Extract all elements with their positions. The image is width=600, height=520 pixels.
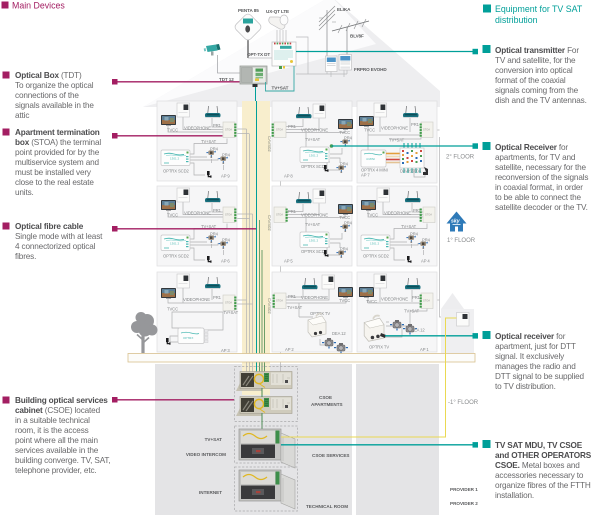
svg-text:in coaxial format, in order: in coaxial format, in order bbox=[495, 183, 583, 192]
svg-text:PR1: PR1 bbox=[213, 295, 222, 300]
svg-text:CSOE: CSOE bbox=[319, 395, 332, 400]
svg-text:close to the real estate: close to the real estate bbox=[15, 178, 94, 187]
svg-text:accessories necessary to: accessories necessary to bbox=[495, 471, 584, 480]
svg-text:organize fibres of the FTTH: organize fibres of the FTTH bbox=[495, 481, 591, 490]
svg-text:PROVIDER 1: PROVIDER 1 bbox=[450, 487, 478, 492]
svg-text:services available in the: services available in the bbox=[15, 446, 99, 455]
svg-text:PENTA 85: PENTA 85 bbox=[238, 8, 259, 13]
svg-text:4 MINI: 4 MINI bbox=[366, 157, 375, 161]
svg-text:INTERNET: INTERNET bbox=[199, 490, 222, 495]
svg-text:-1° FLOOR: -1° FLOOR bbox=[448, 400, 479, 406]
svg-text:DAVIS500A: DAVIS500A bbox=[400, 169, 421, 174]
svg-text:cabinet (CSOE) located: cabinet (CSOE) located bbox=[15, 406, 101, 415]
svg-text:Optical fibre cable: Optical fibre cable bbox=[15, 222, 84, 231]
svg-text:TV+SAT: TV+SAT bbox=[404, 309, 420, 314]
svg-text:installation.: installation. bbox=[495, 491, 534, 500]
svg-text:multiservice system and: multiservice system and bbox=[15, 158, 100, 167]
svg-text:TVCC: TVCC bbox=[364, 128, 375, 133]
svg-text:format of the coaxial: format of the coaxial bbox=[495, 76, 566, 85]
svg-text:satellite, necessary for the: satellite, necessary for the bbox=[495, 163, 587, 172]
svg-text:conversion into optical: conversion into optical bbox=[495, 66, 573, 75]
svg-text:TVCC: TVCC bbox=[167, 307, 178, 312]
svg-text:To organize the optical: To organize the optical bbox=[15, 81, 94, 90]
svg-text:TV SAT MDU, TV CSOE: TV SAT MDU, TV CSOE bbox=[495, 441, 583, 450]
svg-text:ELIKA: ELIKA bbox=[337, 7, 351, 12]
svg-text:AP 1: AP 1 bbox=[420, 347, 429, 352]
svg-text:VIDEO INTERCOM: VIDEO INTERCOM bbox=[186, 452, 226, 457]
svg-text:CSOE. Metal boxes and: CSOE. Metal boxes and bbox=[495, 461, 580, 470]
svg-text:point where all the main: point where all the main bbox=[15, 436, 98, 445]
svg-text:AP 4: AP 4 bbox=[421, 259, 430, 264]
svg-text:VIDEOPHONE: VIDEOPHONE bbox=[381, 126, 408, 131]
svg-text:CAVS02: CAVS02 bbox=[267, 215, 272, 231]
svg-text:AP 7: AP 7 bbox=[361, 173, 370, 178]
svg-text:apartment, just for DTT: apartment, just for DTT bbox=[495, 342, 576, 351]
svg-text:2° FLOOR: 2° FLOOR bbox=[446, 155, 475, 161]
svg-text:UX-QT LTE: UX-QT LTE bbox=[266, 9, 289, 14]
svg-text:TV+SAT: TV+SAT bbox=[389, 138, 405, 143]
svg-text:Optical Box (TDT): Optical Box (TDT) bbox=[15, 71, 82, 80]
svg-text:AP 3: AP 3 bbox=[221, 348, 230, 353]
svg-text:DEA 12: DEA 12 bbox=[411, 328, 425, 333]
svg-text:TV and satellite, for the: TV and satellite, for the bbox=[495, 56, 576, 65]
svg-text:AP 2: AP 2 bbox=[285, 347, 294, 352]
svg-text:AP 9: AP 9 bbox=[221, 174, 230, 179]
svg-text:VIDEOPHONE: VIDEOPHONE bbox=[183, 297, 210, 302]
svg-text:1° FLOOR: 1° FLOOR bbox=[447, 238, 476, 244]
svg-text:telephone provider, etc.: telephone provider, etc. bbox=[15, 466, 97, 475]
svg-text:BLV8F: BLV8F bbox=[350, 34, 364, 39]
svg-text:manages the radio and: manages the radio and bbox=[495, 362, 576, 371]
svg-text:DTT signal to be supplied: DTT signal to be supplied bbox=[495, 372, 585, 381]
svg-text:PR1: PR1 bbox=[288, 294, 297, 299]
svg-text:apartments, for TV and: apartments, for TV and bbox=[495, 153, 576, 162]
svg-text:Optical Receiver for: Optical Receiver for bbox=[495, 143, 568, 152]
svg-text:sky: sky bbox=[451, 219, 461, 225]
svg-text:reconversion of the signals: reconversion of the signals bbox=[495, 173, 588, 182]
svg-text:TVCC: TVCC bbox=[366, 299, 377, 304]
svg-text:satellite decoder or the TV.: satellite decoder or the TV. bbox=[495, 203, 588, 212]
svg-text:to be able to connect the: to be able to connect the bbox=[495, 193, 582, 202]
svg-text:TV+SAT: TV+SAT bbox=[223, 310, 239, 315]
svg-text:Single mode with at least: Single mode with at least bbox=[15, 232, 103, 241]
svg-text:Building optical services: Building optical services bbox=[15, 396, 108, 405]
svg-text:OPTRX TV: OPTRX TV bbox=[369, 345, 389, 350]
svg-text:Main Devices: Main Devices bbox=[12, 1, 65, 11]
svg-text:TV+SAT: TV+SAT bbox=[205, 437, 223, 442]
svg-text:in a suitable technical: in a suitable technical bbox=[15, 416, 90, 425]
svg-text:signals available in the: signals available in the bbox=[15, 101, 94, 110]
svg-text:Equipment for TV SAT: Equipment for TV SAT bbox=[495, 4, 583, 14]
svg-text:units.: units. bbox=[15, 188, 34, 197]
svg-text:OPTRX: OPTRX bbox=[183, 336, 193, 340]
svg-text:fibres.: fibres. bbox=[15, 252, 36, 261]
svg-text:FRPRO EVOHD: FRPRO EVOHD bbox=[354, 67, 387, 72]
svg-text:AP 5: AP 5 bbox=[284, 259, 293, 264]
svg-text:distribution: distribution bbox=[495, 15, 538, 25]
svg-text:DEA 12: DEA 12 bbox=[332, 331, 346, 336]
svg-text:signals coming from the: signals coming from the bbox=[495, 86, 579, 95]
svg-text:OPT-TX DT: OPT-TX DT bbox=[247, 52, 270, 57]
svg-text:TV+SAT: TV+SAT bbox=[287, 305, 303, 310]
svg-text:4 connectorized optical: 4 connectorized optical bbox=[15, 242, 96, 251]
svg-text:AP 6: AP 6 bbox=[221, 259, 230, 264]
svg-text:signal. It exclusively: signal. It exclusively bbox=[495, 352, 565, 361]
svg-text:TVCC: TVCC bbox=[339, 298, 350, 303]
svg-text:Apartment termination: Apartment termination bbox=[15, 128, 100, 137]
svg-text:CAVS02: CAVS02 bbox=[267, 298, 272, 314]
svg-text:TECHNICAL ROOM: TECHNICAL ROOM bbox=[306, 504, 348, 509]
svg-text:CSOE SERVICES: CSOE SERVICES bbox=[312, 453, 349, 458]
svg-text:building converge. TV, SAT,: building converge. TV, SAT, bbox=[15, 456, 110, 465]
svg-text:PR1: PR1 bbox=[411, 122, 420, 127]
svg-text:connections of the: connections of the bbox=[15, 91, 79, 100]
svg-text:PR1: PR1 bbox=[412, 295, 421, 300]
svg-text:attic: attic bbox=[15, 111, 29, 120]
svg-text:TV+SAT: TV+SAT bbox=[272, 86, 289, 91]
svg-text:and OTHER OPERATORS: and OTHER OPERATORS bbox=[495, 451, 592, 460]
svg-text:to TV distribution.: to TV distribution. bbox=[495, 382, 556, 391]
svg-text:Optical receiver for: Optical receiver for bbox=[495, 332, 566, 341]
svg-text:VIDEOPHONE: VIDEOPHONE bbox=[381, 297, 408, 302]
svg-text:point provided for by the: point provided for by the bbox=[15, 148, 100, 157]
svg-text:VIDEOPHONE: VIDEOPHONE bbox=[301, 295, 328, 300]
svg-text:CAVS02: CAVS02 bbox=[267, 136, 272, 152]
svg-text:box (STOA) the terminal: box (STOA) the terminal bbox=[15, 138, 101, 147]
svg-text:APARTMENTS: APARTMENTS bbox=[311, 402, 343, 407]
svg-text:AP 8: AP 8 bbox=[284, 174, 293, 179]
svg-text:dish and the TV antennas.: dish and the TV antennas. bbox=[495, 96, 587, 105]
svg-text:PROVIDER 2: PROVIDER 2 bbox=[450, 501, 478, 506]
svg-text:must be installed very: must be installed very bbox=[15, 168, 92, 177]
svg-text:room, it is the access: room, it is the access bbox=[15, 426, 89, 435]
svg-text:Optical transmitter For: Optical transmitter For bbox=[495, 46, 579, 55]
